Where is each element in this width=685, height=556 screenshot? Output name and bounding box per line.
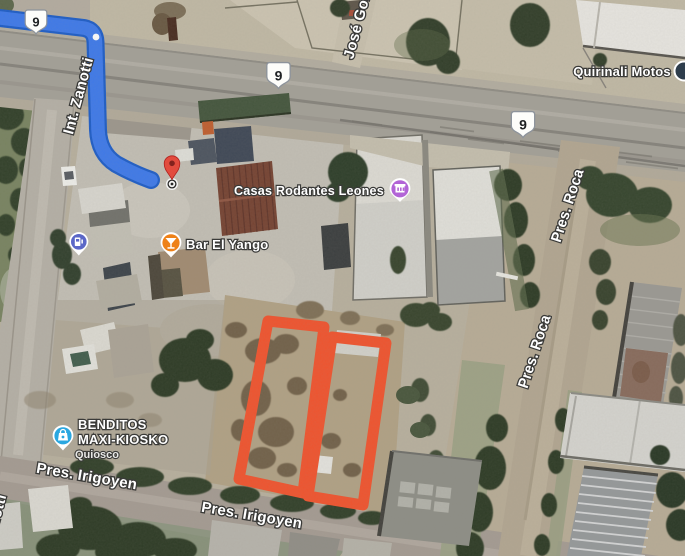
svg-text:Casas Rodantes Leones: Casas Rodantes Leones — [234, 183, 384, 198]
svg-text:9: 9 — [519, 116, 527, 132]
svg-text:Bar El Yango: Bar El Yango — [186, 237, 268, 252]
svg-text:Quiosco: Quiosco — [75, 449, 119, 461]
svg-text:BENDITOS: BENDITOS — [78, 417, 147, 432]
svg-text:9: 9 — [32, 15, 39, 30]
svg-text:MAXI-KIOSKO: MAXI-KIOSKO — [78, 432, 168, 447]
svg-text:Quirinali Motos: Quirinali Motos — [573, 64, 671, 79]
svg-text:9: 9 — [275, 67, 283, 83]
